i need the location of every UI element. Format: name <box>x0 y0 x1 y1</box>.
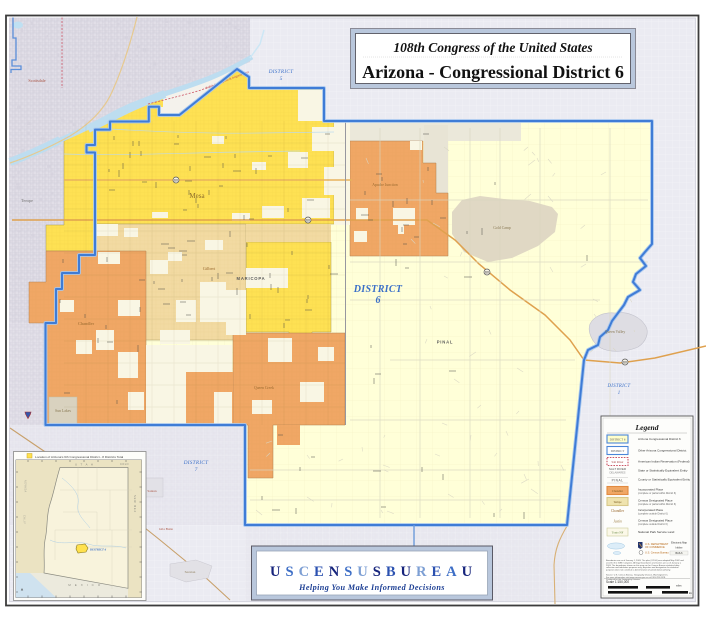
svg-text:NEVADA: NEVADA <box>24 480 27 493</box>
svg-text:Census Designated Place: Census Designated Place <box>638 519 673 523</box>
svg-text:Census Designated Place: Census Designated Place <box>638 499 673 503</box>
svg-text:Salt River: Salt River <box>611 460 623 464</box>
svg-text:DISTRICT: DISTRICT <box>611 449 625 453</box>
svg-text:Helping You Make Informed Deci: Helping You Make Informed Decisions <box>298 583 445 592</box>
svg-text:County or Statistically Equiva: County or Statistically Equivalent Entit… <box>638 478 691 482</box>
svg-text:1: 1 <box>618 391 620 396</box>
svg-text:Gila Butte: Gila Butte <box>159 527 174 531</box>
svg-text:(complete or partial within Di: (complete or partial within District 6) <box>638 492 676 495</box>
svg-text:60: 60 <box>306 219 310 223</box>
svg-text:(complete outside District 6): (complete outside District 6) <box>638 512 668 515</box>
svg-text:60: 60 <box>623 361 627 365</box>
svg-text:Gilbert: Gilbert <box>203 266 216 271</box>
svg-text:PINAL: PINAL <box>612 479 624 483</box>
svg-text:State or Statistically Equival: State or Statistically Equivalent Entity <box>638 469 688 473</box>
svg-text:Chandler: Chandler <box>611 509 625 513</box>
svg-text:SALT RIVER: SALT RIVER <box>609 467 627 471</box>
svg-text:60: 60 <box>174 179 178 183</box>
svg-text:American Indian Reservation (F: American Indian Reservation (Federal) <box>638 460 690 464</box>
svg-text:Tonto NF: Tonto NF <box>612 531 624 535</box>
svg-text:DISTRICT 6: DISTRICT 6 <box>89 548 107 552</box>
svg-text:5: 5 <box>280 76 283 82</box>
svg-text:purposes does not constitute a: purposes does not constitute a determina… <box>606 569 671 572</box>
svg-text:COLO: COLO <box>120 462 129 466</box>
svg-text:OF COMMERCE: OF COMMERCE <box>645 545 665 549</box>
svg-text:Arizona Congressional District: Arizona Congressional District 6 <box>638 437 681 441</box>
svg-text:Mesa: Mesa <box>189 192 205 200</box>
svg-text:M E X I C O: M E X I C O <box>68 583 102 587</box>
svg-text:PINAL: PINAL <box>437 340 454 345</box>
svg-text:DISTRICT: DISTRICT <box>607 384 631 389</box>
svg-text:Gold Camp: Gold Camp <box>493 226 511 230</box>
svg-text:7: 7 <box>195 467 198 473</box>
svg-text:Chandler: Chandler <box>78 321 95 326</box>
svg-text:Sun Lakes: Sun Lakes <box>55 409 71 413</box>
svg-text:DISTRICT 6: DISTRICT 6 <box>610 438 626 442</box>
svg-text:Santan: Santan <box>147 489 157 493</box>
svg-text:60: 60 <box>485 271 489 275</box>
svg-text:Inkline: Inkline <box>676 547 684 550</box>
svg-text:National Park Service Land: National Park Service Land <box>638 530 675 534</box>
svg-text:Scottsdale: Scottsdale <box>28 78 45 83</box>
svg-text:Chandler: Chandler <box>612 489 623 493</box>
svg-text:DISTRICT: DISTRICT <box>183 460 209 466</box>
svg-text:Scale 1:150,000: Scale 1:150,000 <box>606 580 629 584</box>
svg-text:U.S. Census Bureau: U.S. Census Bureau <box>645 551 669 555</box>
svg-text:Incorporated Place: Incorporated Place <box>638 488 664 492</box>
svg-text:DISTRICT: DISTRICT <box>353 284 403 295</box>
svg-text:Arizona - Congressional Distri: Arizona - Congressional District 6 <box>362 62 624 82</box>
svg-text:USCENSUSBUREAU: USCENSUSBUREAU <box>270 564 477 580</box>
svg-text:U T A H: U T A H <box>75 463 94 467</box>
svg-text:Other Arizona Congressional Di: Other Arizona Congressional District <box>638 449 687 453</box>
svg-text:Justin: Justin <box>613 520 622 524</box>
svg-text:(complete outside District 6): (complete outside District 6) <box>638 523 668 526</box>
svg-text:Apache Junction: Apache Junction <box>372 183 398 187</box>
svg-text:Queen Valley: Queen Valley <box>605 330 626 334</box>
svg-text:Tempe: Tempe <box>21 198 33 203</box>
svg-text:km: km <box>689 592 692 595</box>
svg-text:Sacaton: Sacaton <box>185 570 196 574</box>
svg-text:Tempe: Tempe <box>613 500 622 504</box>
svg-text:DELAWARES: DELAWARES <box>609 471 625 475</box>
svg-text:(complete or partial within Di: (complete or partial within District 6) <box>638 503 676 506</box>
svg-text:Incorporated Place: Incorporated Place <box>638 508 664 512</box>
svg-text:BAS-6: BAS-6 <box>676 552 684 555</box>
svg-text:6: 6 <box>376 295 381 306</box>
svg-text:CALIF: CALIF <box>23 515 26 524</box>
svg-text:Queen Creek: Queen Creek <box>254 386 274 390</box>
svg-text:DISTRICT: DISTRICT <box>268 69 294 75</box>
svg-text:miles: miles <box>676 585 682 588</box>
svg-text:Location of Arizona's 6th Cong: Location of Arizona's 6th Congressional … <box>35 455 124 459</box>
svg-text:Legend: Legend <box>635 423 659 432</box>
svg-text:Electronic Map: Electronic Map <box>671 542 687 545</box>
svg-text:108th Congress of the United S: 108th Congress of the United States <box>393 40 592 55</box>
svg-text:MARICOPA: MARICOPA <box>237 276 266 281</box>
